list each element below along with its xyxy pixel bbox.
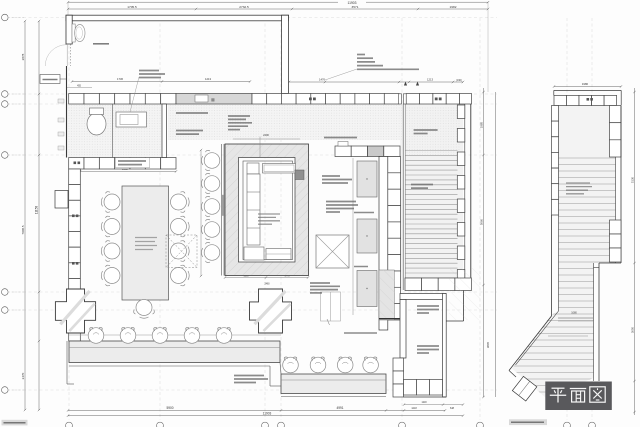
svg-text:3050: 3050 — [630, 326, 634, 333]
svg-text:2400: 2400 — [263, 133, 269, 137]
svg-text:5130: 5130 — [630, 176, 634, 183]
svg-text:1218: 1218 — [421, 402, 427, 404]
svg-text:(190): (190) — [456, 79, 462, 82]
svg-text:2460: 2460 — [264, 283, 270, 285]
svg-text:7008.5: 7008.5 — [21, 225, 25, 235]
svg-text:4991: 4991 — [336, 406, 343, 410]
svg-text:1080: 1080 — [571, 312, 577, 315]
svg-text:11158: 11158 — [35, 206, 39, 215]
svg-text:3571: 3571 — [352, 5, 359, 9]
svg-text:5660: 5660 — [479, 218, 483, 225]
svg-text:1980: 1980 — [582, 82, 589, 86]
svg-text:1982: 1982 — [450, 5, 457, 9]
svg-text:11903: 11903 — [263, 411, 272, 415]
svg-text:648: 648 — [450, 407, 455, 410]
svg-text:5900: 5900 — [166, 406, 173, 410]
svg-text:1736: 1736 — [117, 77, 123, 81]
svg-text:1218: 1218 — [411, 407, 417, 410]
svg-text:3865: 3865 — [486, 341, 490, 348]
svg-text:1476: 1476 — [319, 78, 325, 82]
svg-text:1985: 1985 — [479, 121, 483, 128]
svg-text:1213: 1213 — [427, 78, 433, 82]
svg-text:2470: 2470 — [21, 372, 25, 379]
svg-text:1213: 1213 — [205, 77, 211, 81]
svg-text:2878: 2878 — [21, 53, 25, 60]
svg-text:1705.5: 1705.5 — [127, 5, 137, 9]
svg-text:2732.5: 2732.5 — [239, 5, 249, 9]
